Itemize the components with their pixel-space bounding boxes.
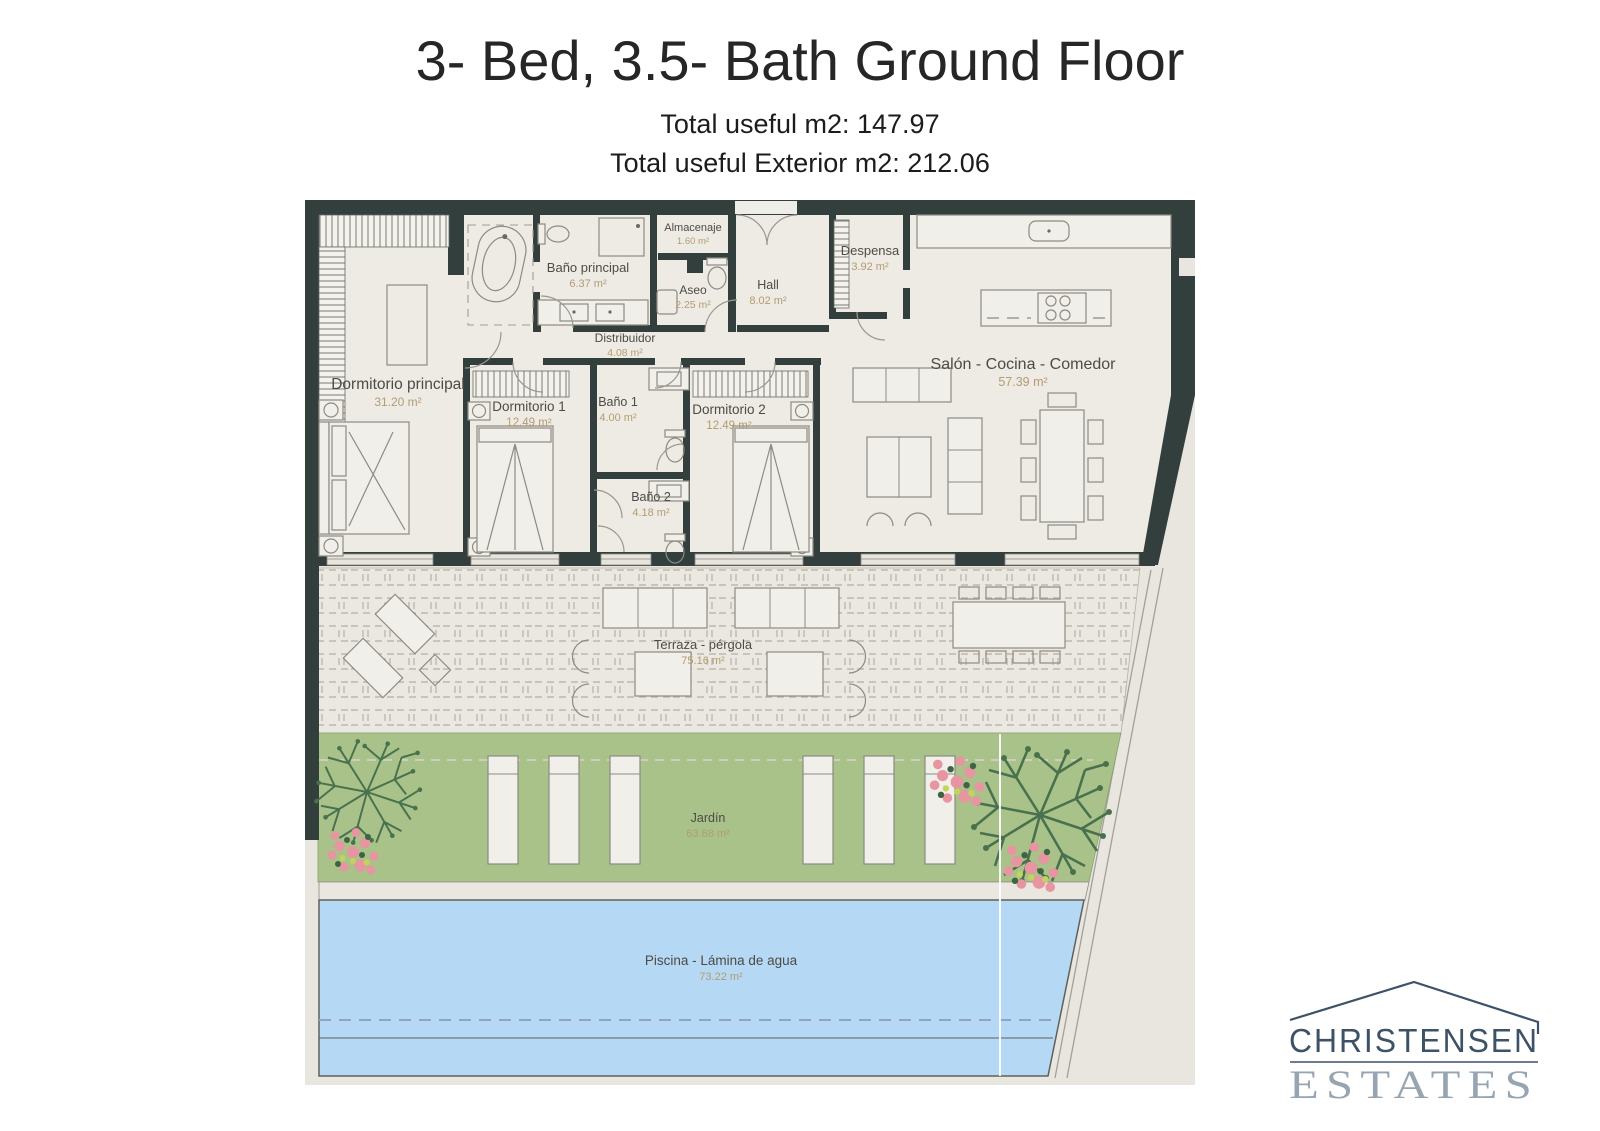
total-useful-exterior-m2: Total useful Exterior m2: 212.06 [0,148,1600,179]
room-label-hall: Hall [757,278,779,292]
room-area-distribuidor: 4.08 m² [607,347,643,359]
total-useful-m2: Total useful m2: 147.97 [0,109,1600,140]
room-area-terraza: 75.16 m² [681,655,725,667]
floor-plan-svg: Almacenaje 1.60 m² Baño principal 6.37 m… [305,200,1195,1085]
room-label-despensa: Despensa [841,243,900,258]
room-label-bano-1: Baño 1 [598,395,638,409]
room-label-terraza: Terraza - pérgola [654,637,753,652]
despensa-shelving [834,220,849,308]
brand-logo-svg: CHRISTENSEN ESTATES [1280,974,1550,1114]
chaise [948,418,982,514]
outdoor-sofa [603,588,707,628]
coffee-table [767,652,823,696]
toilet [538,224,545,244]
kitchen-counter [917,215,1171,248]
room-area-almacenaje: 1.60 m² [677,236,709,247]
room-label-bano-principal: Baño principal [547,260,629,275]
terrace-dining-table [953,602,1065,648]
room-area-dormitorio-principal: 31.20 m² [374,395,421,409]
room-area-bano-1: 4.00 m² [599,412,637,424]
pool-area [319,900,1084,1076]
header: 3- Bed, 3.5- Bath Ground Floor Total use… [0,28,1600,187]
room-label-dormitorio-principal: Dormitorio principal [331,376,465,393]
room-area-dormitorio-1: 12.49 m² [506,417,552,429]
room-label-distribuidor: Distribuidor [595,331,656,345]
room-area-bano-principal: 6.37 m² [569,278,607,290]
toilet [665,534,685,541]
room-area-bano-2: 4.18 m² [632,507,670,519]
brand-logo: CHRISTENSEN ESTATES [1280,974,1550,1119]
logo-name: CHRISTENSEN [1289,1022,1539,1059]
bed-headboard [319,422,329,534]
toilet [707,258,727,265]
page: { "header": { "title": "3- Bed, 3.5- Bat… [0,0,1600,1131]
room-area-salon: 57.39 m² [998,375,1047,389]
logo-estates: ESTATES [1289,1062,1539,1107]
room-label-piscina: Piscina - Lámina de agua [645,953,798,968]
double-vanity [538,300,648,325]
room-area-aseo: 2.25 m² [675,299,711,311]
kitchen-island [981,290,1111,326]
room-label-salon: Salón - Cocina - Comedor [931,356,1117,373]
plot-divider-line [999,734,1001,1076]
room-label-dormitorio-1: Dormitorio 1 [492,399,566,414]
room-label-jardin: Jardín [691,811,726,825]
floor-plan: Almacenaje 1.60 m² Baño principal 6.37 m… [305,200,1195,1085]
outdoor-sofa [735,588,839,628]
pool-deck [319,882,1089,900]
room-area-piscina: 73.22 m² [699,971,743,983]
room-area-jardin: 63.68 m² [686,828,730,840]
room-area-dormitorio-2: 12.49 m² [706,420,752,432]
entrance-opening [735,201,797,214]
room-label-bano-2: Baño 2 [631,490,671,504]
toilet [665,430,685,437]
room-label-dormitorio-2: Dormitorio 2 [692,402,766,417]
sofa [853,368,951,402]
page-title: 3- Bed, 3.5- Bath Ground Floor [0,28,1600,93]
dining-table [1040,410,1084,522]
room-label-almacenaje: Almacenaje [664,222,721,234]
room-area-hall: 8.02 m² [749,295,787,307]
room-label-aseo: Aseo [679,283,707,297]
room-area-despensa: 3.92 m² [851,261,889,273]
sink [649,368,689,390]
